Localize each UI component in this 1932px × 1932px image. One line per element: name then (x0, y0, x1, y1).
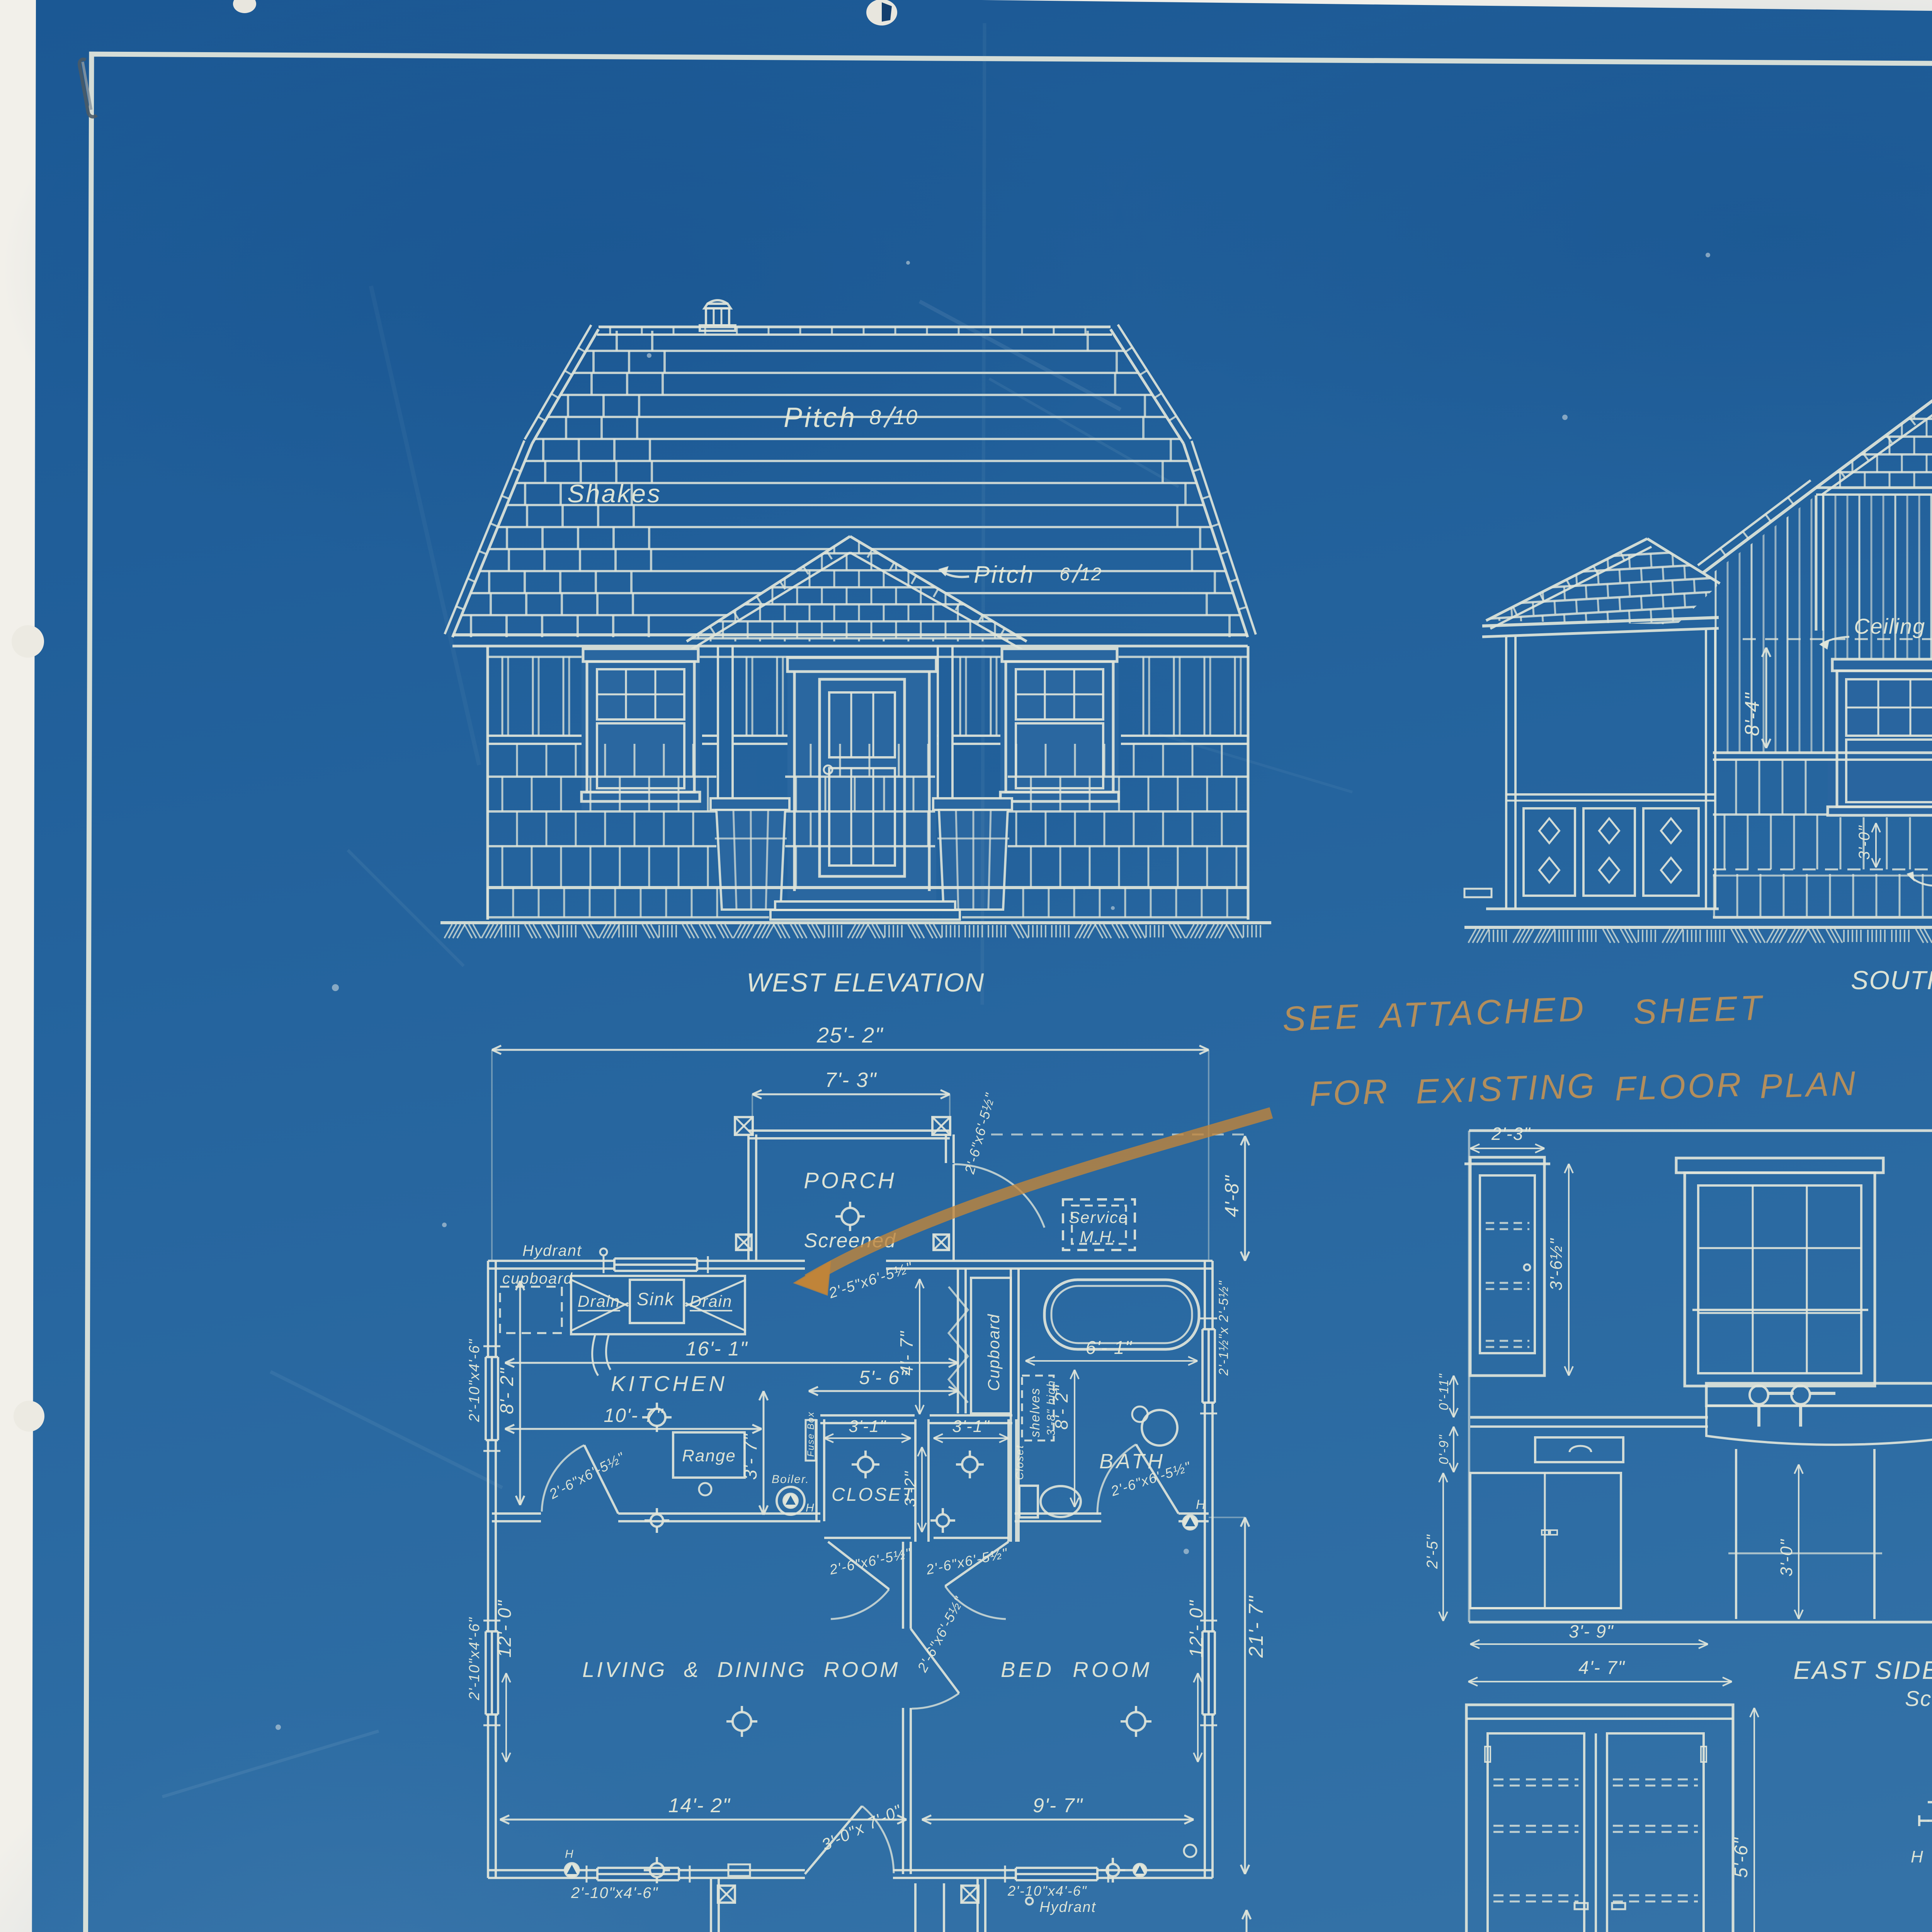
svg-text:4'- 7": 4'- 7" (896, 1330, 917, 1376)
svg-text:Scale: Scale (1905, 1686, 1932, 1711)
svg-text:ATTACHED: ATTACHED (1377, 990, 1587, 1036)
svg-text:H: H (1196, 1497, 1206, 1512)
svg-text:4'-8": 4'-8" (1221, 1175, 1243, 1217)
svg-text:Sink: Sink (637, 1289, 674, 1309)
svg-text:14'- 2": 14'- 2" (668, 1794, 731, 1817)
svg-text:3'-6½": 3'-6½" (1547, 1238, 1566, 1291)
svg-text:3'-2": 3'-2" (901, 1471, 919, 1507)
svg-text:Closet: Closet (1014, 1445, 1026, 1480)
svg-text:FOR: FOR (1309, 1072, 1390, 1114)
svg-text:Fuse Box: Fuse Box (806, 1412, 816, 1457)
svg-text:Ceiling Line: Ceiling Line (1854, 614, 1932, 638)
svg-text:8'-4": 8'-4" (1741, 692, 1764, 736)
svg-text:PORCH: PORCH (804, 1168, 896, 1193)
svg-text:9'- 7": 9'- 7" (1033, 1794, 1083, 1817)
svg-text:EAST SIDE OF KITCHEN: EAST SIDE OF KITCHEN (1793, 1656, 1932, 1684)
svg-text:3'-1": 3'-1" (952, 1417, 990, 1436)
svg-text:10: 10 (893, 406, 918, 429)
svg-text:4'- 7": 4'- 7" (1578, 1658, 1625, 1678)
svg-text:0'-9": 0'-9" (1437, 1434, 1451, 1464)
svg-text:8'- 2": 8'- 2" (497, 1367, 517, 1414)
svg-text:Range: Range (682, 1446, 736, 1465)
svg-text:Cupboard: Cupboard (985, 1314, 1003, 1391)
svg-text:25'- 2": 25'- 2" (816, 1023, 883, 1047)
svg-text:12: 12 (1080, 564, 1102, 585)
svg-text:2'-1½"x 2'-5½": 2'-1½"x 2'-5½" (1216, 1280, 1231, 1376)
svg-text:10'- 7": 10'- 7" (604, 1405, 664, 1426)
svg-text:6'- 1": 6'- 1" (1086, 1338, 1133, 1358)
svg-text:LIVING & DINING ROOM: LIVING & DINING ROOM (582, 1657, 900, 1682)
svg-text:2'-10"x4'-6": 2'-10"x4'-6" (1007, 1883, 1087, 1899)
svg-text:SOUTH ELEVATION: SOUTH ELEVATION (1851, 966, 1932, 995)
svg-text:Service: Service (1069, 1208, 1128, 1226)
svg-text:7'- 3": 7'- 3" (825, 1068, 877, 1092)
svg-text:2'-10"x4'-6": 2'-10"x4'-6" (571, 1884, 658, 1901)
svg-text:12'- 0": 12'- 0" (1186, 1600, 1207, 1658)
svg-text:16'- 1": 16'- 1" (686, 1338, 748, 1360)
svg-text:2'-3": 2'-3" (1491, 1124, 1531, 1144)
svg-text:KITCHEN: KITCHEN (611, 1371, 728, 1396)
svg-text:Boiler.: Boiler. (772, 1473, 810, 1486)
svg-text:0'-11": 0'-11" (1437, 1373, 1451, 1410)
svg-text:8'- 2": 8'- 2" (1051, 1384, 1071, 1430)
svg-text:WEST ELEVATION: WEST ELEVATION (747, 968, 985, 997)
svg-text:5'-6": 5'-6" (1731, 1837, 1752, 1878)
svg-text:Hydrant: Hydrant (1039, 1899, 1096, 1915)
svg-text:SHEET: SHEET (1633, 988, 1765, 1032)
svg-text:cupboard: cupboard (502, 1270, 573, 1287)
svg-text:6: 6 (1060, 564, 1071, 585)
svg-text:PLAN: PLAN (1759, 1064, 1858, 1105)
svg-text:EXISTING: EXISTING (1415, 1066, 1597, 1111)
svg-text:3'-0": 3'-0" (1856, 825, 1873, 860)
svg-text:8: 8 (869, 406, 882, 429)
svg-text:21'- 7": 21'- 7" (1245, 1595, 1267, 1658)
svg-text:SEE: SEE (1282, 997, 1362, 1039)
svg-text:M.H.: M.H. (1080, 1228, 1117, 1246)
svg-text:Drain: Drain (578, 1292, 620, 1310)
svg-text:3'-0": 3'-0" (1777, 1539, 1796, 1577)
svg-text:Pitch: Pitch (784, 402, 857, 433)
svg-text:2'-10"x4'-6": 2'-10"x4'-6" (466, 1617, 483, 1701)
svg-text:H: H (565, 1848, 574, 1861)
svg-text:H: H (1911, 1847, 1924, 1866)
svg-text:Shakes: Shakes (567, 479, 662, 508)
svg-text:FLOOR: FLOOR (1614, 1065, 1744, 1108)
svg-text:BATH: BATH (1099, 1450, 1166, 1473)
svg-text:12'- 0": 12'- 0" (495, 1600, 515, 1658)
svg-text:shelves: shelves (1028, 1388, 1043, 1437)
svg-text:2'-10"x4'-6": 2'-10"x4'-6" (466, 1339, 483, 1422)
svg-text:Hydrant: Hydrant (522, 1242, 582, 1259)
svg-text:Drain: Drain (690, 1292, 732, 1310)
svg-text:3'- 9": 3'- 9" (1569, 1621, 1614, 1641)
svg-text:2'-5": 2'-5" (1424, 1534, 1441, 1569)
svg-text:3'- 7": 3'- 7" (740, 1433, 761, 1480)
svg-text:3'-1": 3'-1" (849, 1417, 886, 1436)
svg-text:BED ROOM: BED ROOM (1001, 1657, 1152, 1682)
